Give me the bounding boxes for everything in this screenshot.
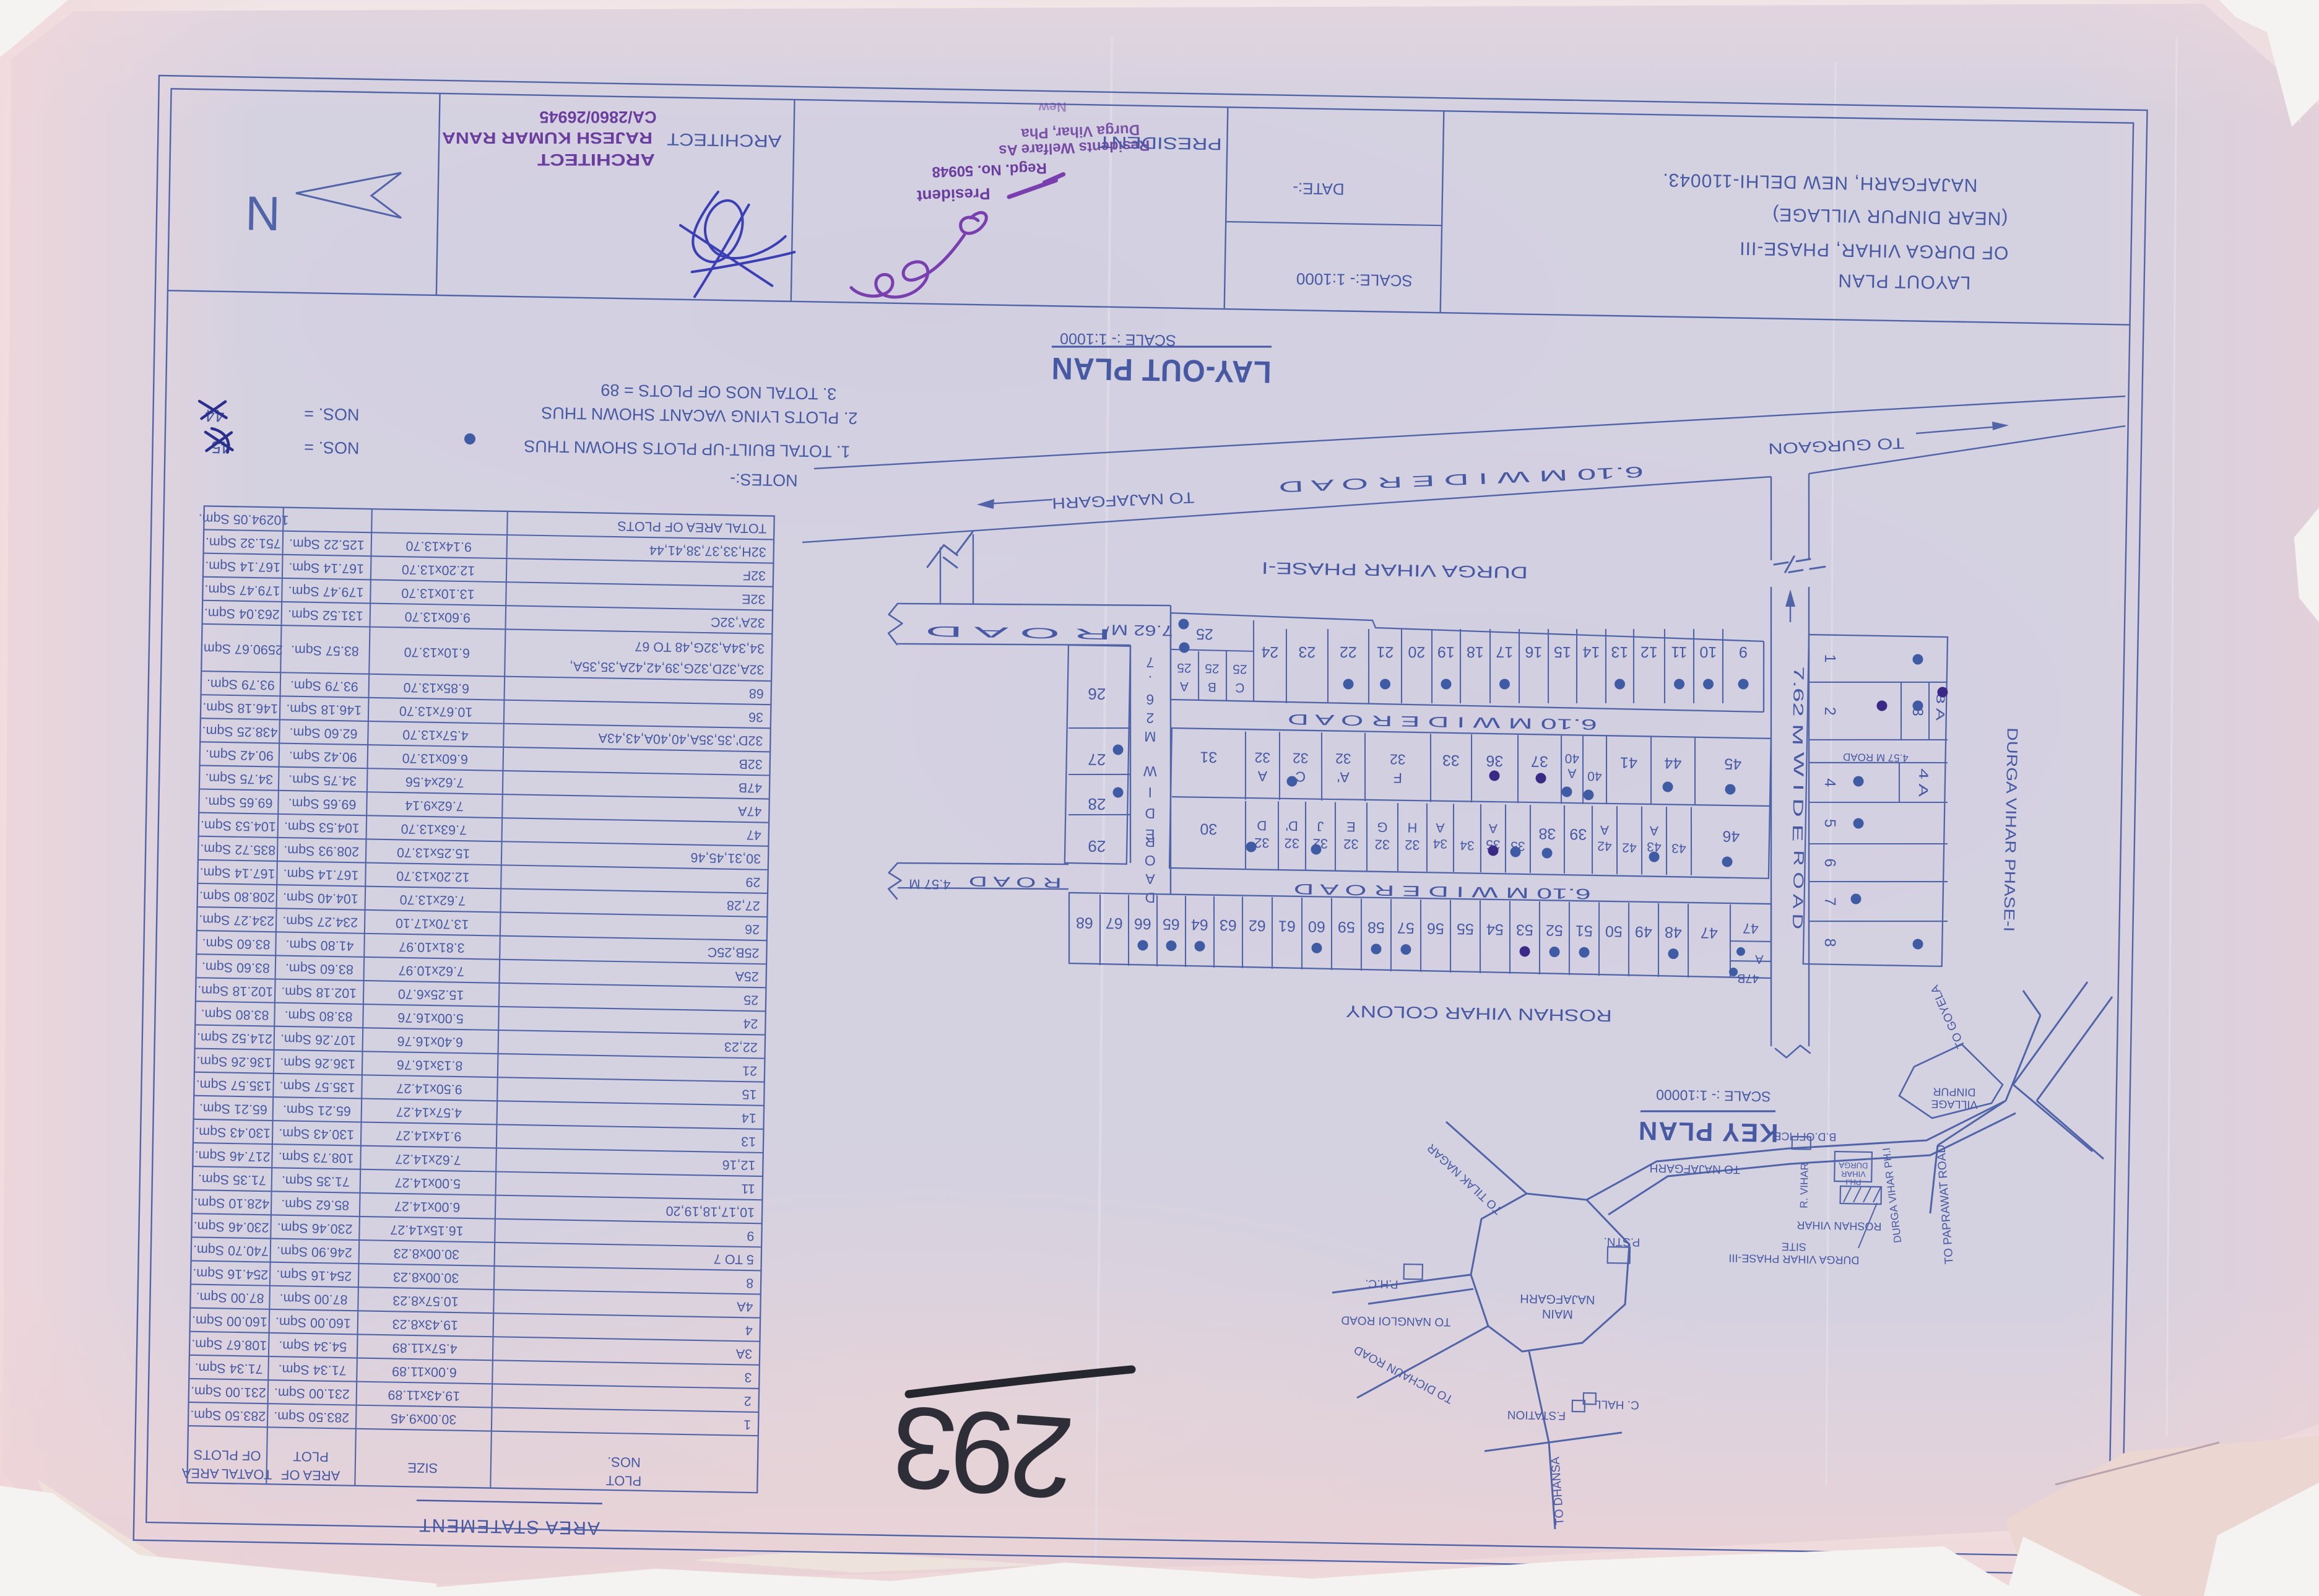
svg-text:146.18 Sqm.: 146.18 Sqm. (202, 700, 278, 716)
svg-text:34.75 Sqm.: 34.75 Sqm. (288, 772, 357, 788)
svg-text:25A: 25A (735, 969, 759, 984)
svg-text:69.65 Sqm.: 69.65 Sqm. (288, 796, 356, 812)
svg-text:55: 55 (1457, 920, 1474, 937)
svg-text:4.57 M ROAD: 4.57 M ROAD (1843, 751, 1909, 764)
svg-text:16: 16 (1525, 643, 1542, 661)
svg-text:58: 58 (1368, 919, 1385, 936)
svg-text:47B: 47B (1737, 971, 1759, 986)
svg-text:85.62 Sqm.: 85.62 Sqm. (281, 1197, 349, 1213)
svg-text:AREA STATEMENT: AREA STATEMENT (418, 1515, 600, 1538)
svg-text:47B: 47B (739, 780, 763, 796)
svg-text:M: M (1144, 729, 1156, 745)
svg-text:41.80 Sqm.: 41.80 Sqm. (285, 937, 353, 953)
svg-text:9.60x13.70: 9.60x13.70 (404, 609, 470, 625)
svg-text:NOS. =: NOS. = (304, 438, 360, 458)
svg-text:62.60 Sqm.: 62.60 Sqm. (289, 725, 357, 741)
svg-text:A: A (1567, 766, 1576, 780)
svg-text:9.14x14.27: 9.14x14.27 (396, 1128, 462, 1144)
svg-text:102.18 Sqm.: 102.18 Sqm. (281, 984, 357, 1000)
svg-text:136.26 Sqm.: 136.26 Sqm. (196, 1054, 272, 1070)
svg-text:254.16 Sqm.: 254.16 Sqm. (276, 1267, 352, 1283)
svg-text:30.00x8.23: 30.00x8.23 (393, 1270, 459, 1286)
svg-text:15: 15 (1554, 643, 1571, 661)
svg-text:6.40x16.76: 6.40x16.76 (397, 1034, 463, 1050)
svg-text:21: 21 (742, 1063, 757, 1078)
svg-text:32: 32 (1284, 836, 1299, 851)
svg-text:104.53 Sqm.: 104.53 Sqm. (284, 820, 360, 836)
svg-text:87.00 Sqm.: 87.00 Sqm. (279, 1291, 347, 1307)
svg-text:231.00 Sqm.: 231.00 Sqm. (191, 1384, 266, 1400)
svg-text:7.62x14.27: 7.62x14.27 (395, 1151, 461, 1168)
svg-text:11: 11 (1671, 643, 1687, 661)
svg-text:263.04 Sqm.: 263.04 Sqm. (204, 605, 280, 622)
svg-text:13.10x13.70: 13.10x13.70 (401, 586, 475, 602)
svg-text:J: J (1317, 818, 1324, 834)
svg-text:AREA OF: AREA OF (281, 1467, 340, 1484)
svg-text:254.16 Sqm.: 254.16 Sqm. (193, 1266, 268, 1282)
svg-text:7: 7 (1146, 654, 1154, 670)
svg-text:25: 25 (1233, 662, 1247, 676)
svg-text:29: 29 (1088, 837, 1106, 856)
svg-text:9: 9 (1739, 643, 1748, 661)
svg-text:A: A (1180, 679, 1189, 693)
svg-text:5 TO 7: 5 TO 7 (714, 1252, 754, 1267)
svg-text:13.70x17.10: 13.70x17.10 (396, 916, 469, 932)
svg-text:135.57 Sqm.: 135.57 Sqm. (279, 1079, 355, 1095)
svg-text:25: 25 (743, 992, 758, 1007)
svg-text:231.00 Sqm.: 231.00 Sqm. (274, 1386, 350, 1402)
svg-text:30,31,45,46: 30,31,45,46 (690, 850, 761, 866)
svg-text:751.32 Sqm.: 751.32 Sqm. (206, 535, 281, 551)
svg-text:33: 33 (1442, 752, 1460, 769)
svg-text:7.62 M: 7.62 M (1790, 666, 1807, 745)
svg-text:4.57x13.70: 4.57x13.70 (402, 727, 469, 744)
svg-text:34,34A,32G,48 TO 67: 34,34A,32G,48 TO 67 (635, 639, 765, 656)
svg-text:LAY-OUT PLAN: LAY-OUT PLAN (1051, 351, 1272, 389)
svg-text:104.40 Sqm.: 104.40 Sqm. (283, 890, 358, 906)
svg-text:32: 32 (1254, 750, 1270, 766)
svg-text:68: 68 (1076, 914, 1093, 931)
svg-text:A: A (1600, 823, 1609, 837)
svg-text:53: 53 (1516, 921, 1533, 939)
svg-text:32: 32 (1335, 750, 1351, 766)
svg-text:107.26 Sqm.: 107.26 Sqm. (280, 1031, 356, 1047)
svg-text:7.62x4.56: 7.62x4.56 (405, 774, 464, 791)
svg-text:New: New (1038, 99, 1067, 116)
svg-text:40: 40 (1587, 769, 1602, 783)
svg-text:37: 37 (1531, 752, 1548, 770)
svg-text:13: 13 (1611, 643, 1628, 661)
svg-text:428.10 Sqm.: 428.10 Sqm. (194, 1195, 269, 1212)
svg-text:42: 42 (1622, 840, 1637, 854)
svg-text:24: 24 (1261, 643, 1278, 661)
svg-text:24: 24 (743, 1016, 758, 1031)
svg-text:10294.05 Sqm.: 10294.05 Sqm. (198, 511, 288, 528)
svg-text:19.43x8.23: 19.43x8.23 (392, 1317, 458, 1333)
svg-text:(NEAR DINPUR VILLAGE): (NEAR DINPUR VILLAGE) (1772, 204, 2008, 229)
svg-text:34: 34 (1460, 838, 1475, 852)
svg-text:25B,25C: 25B,25C (708, 945, 760, 960)
svg-text:8: 8 (1821, 938, 1839, 947)
svg-text:PLOT: PLOT (293, 1449, 329, 1465)
svg-text:4.57x14.27: 4.57x14.27 (396, 1104, 462, 1121)
svg-text:71.34 Sqm.: 71.34 Sqm. (278, 1362, 346, 1378)
svg-text:B: B (1208, 680, 1216, 694)
svg-text:3A: 3A (735, 1347, 752, 1361)
svg-text:234.27 Sqm.: 234.27 Sqm. (199, 913, 274, 929)
svg-text:38: 38 (1538, 825, 1556, 842)
svg-text:28: 28 (1088, 795, 1106, 814)
svg-text:TO NANGLOI ROAD: TO NANGLOI ROAD (1341, 1313, 1450, 1328)
svg-text:7: 7 (1821, 897, 1839, 906)
svg-text:PRESIDENT: PRESIDENT (1098, 132, 1222, 153)
svg-text:93.79 Sqm.: 93.79 Sqm. (207, 677, 275, 693)
svg-text:12: 12 (1641, 643, 1658, 661)
svg-text:12.20x13.70: 12.20x13.70 (402, 562, 475, 578)
svg-text:4.57 M: 4.57 M (909, 876, 951, 892)
svg-text:32: 32 (1390, 752, 1406, 768)
svg-text:87.00 Sqm.: 87.00 Sqm. (196, 1290, 264, 1306)
svg-text:PLOT: PLOT (606, 1473, 642, 1489)
svg-text:34.75 Sqm.: 34.75 Sqm. (205, 771, 273, 787)
svg-text:32: 32 (1405, 837, 1420, 852)
svg-text:54: 54 (1486, 921, 1504, 938)
svg-text:17: 17 (1496, 643, 1513, 661)
svg-text:30: 30 (1200, 820, 1217, 838)
svg-text:83.80 Sqm.: 83.80 Sqm. (284, 1008, 352, 1024)
svg-text:NAJAFGARH: NAJAFGARH (1520, 1291, 1595, 1306)
svg-text:TOATAL AREA: TOATAL AREA (181, 1465, 272, 1483)
svg-text:7.62x9.14: 7.62x9.14 (405, 798, 464, 814)
svg-text:50: 50 (1605, 922, 1623, 940)
svg-text:47A: 47A (737, 804, 761, 819)
svg-text:160.00 Sqm.: 160.00 Sqm. (192, 1313, 267, 1329)
svg-text:90.42 Sqm.: 90.42 Sqm. (206, 747, 274, 763)
svg-text:A: A (1436, 820, 1444, 835)
svg-text:R O A D: R O A D (969, 874, 1062, 891)
svg-text:25: 25 (1205, 661, 1220, 675)
svg-text:F.STATION: F.STATION (1507, 1408, 1566, 1422)
svg-text:293: 293 (892, 1382, 1078, 1524)
svg-text:214.52 Sqm.: 214.52 Sqm. (197, 1030, 272, 1046)
svg-text:32: 32 (1343, 836, 1359, 852)
svg-text:6.85x13.70: 6.85x13.70 (403, 680, 469, 696)
svg-text:32A',32C: 32A',32C (711, 615, 765, 631)
svg-text:1: 1 (743, 1417, 751, 1432)
svg-text:54.34 Sqm.: 54.34 Sqm. (279, 1338, 347, 1355)
svg-text:D: D (1145, 805, 1155, 822)
svg-text:12.20x13.70: 12.20x13.70 (396, 869, 470, 885)
svg-text:167.14 Sqm.: 167.14 Sqm. (288, 560, 364, 576)
svg-text:39: 39 (1569, 825, 1587, 843)
svg-text:3 A: 3 A (1933, 693, 1947, 721)
svg-text:167.14 Sqm.: 167.14 Sqm. (205, 558, 280, 575)
svg-text:TOTAL AREA OF PLOTS: TOTAL AREA OF PLOTS (617, 519, 766, 536)
svg-text:SCALE :- 1:10000: SCALE :- 1:10000 (1656, 1086, 1771, 1104)
svg-text:5.00x16.76: 5.00x16.76 (397, 1010, 464, 1026)
svg-text:I: I (1148, 784, 1152, 800)
svg-text:5: 5 (1821, 818, 1839, 827)
svg-text:71.35 Sqm.: 71.35 Sqm. (198, 1172, 266, 1188)
svg-text:C. HALL: C. HALL (1595, 1397, 1639, 1411)
svg-text:130.43 Sqm.: 130.43 Sqm. (195, 1124, 271, 1140)
svg-text:283.50 Sqm.: 283.50 Sqm. (274, 1409, 349, 1425)
svg-text:9: 9 (747, 1228, 754, 1243)
svg-text:83.60 Sqm.: 83.60 Sqm. (202, 960, 270, 976)
svg-text:167.14 Sqm.: 167.14 Sqm. (283, 867, 358, 883)
svg-text:59: 59 (1338, 918, 1355, 935)
svg-text:438.25 Sqm.: 438.25 Sqm. (202, 724, 277, 740)
svg-text:27: 27 (1088, 750, 1106, 770)
svg-text:136.26 Sqm.: 136.26 Sqm. (280, 1055, 355, 1071)
svg-text:C: C (1235, 680, 1245, 695)
svg-text:14: 14 (1582, 643, 1600, 661)
svg-text:63: 63 (1220, 916, 1237, 934)
svg-text:KEY PLAN: KEY PLAN (1637, 1116, 1779, 1148)
svg-text:9.50x14.27: 9.50x14.27 (396, 1081, 462, 1097)
svg-text:2: 2 (1146, 710, 1154, 726)
svg-text:102.18 Sqm.: 102.18 Sqm. (197, 983, 273, 999)
svg-text:67: 67 (1106, 914, 1123, 932)
svg-text:29: 29 (745, 875, 760, 890)
svg-text:10.67x13.70: 10.67x13.70 (399, 703, 473, 719)
svg-text:43: 43 (1671, 841, 1686, 855)
svg-text:NOS.: NOS. (607, 1454, 641, 1470)
svg-text:W I D E: W I D E (1790, 752, 1808, 841)
svg-text:A: A (1489, 821, 1498, 835)
svg-text:A: A (1257, 768, 1267, 784)
svg-text:36: 36 (748, 709, 763, 724)
svg-text:CA/2860/26945: CA/2860/26945 (539, 108, 656, 126)
svg-text:11: 11 (741, 1181, 755, 1196)
svg-text:60: 60 (1308, 917, 1325, 935)
svg-text:283.50 Sqm.: 283.50 Sqm. (190, 1408, 266, 1424)
svg-text:20: 20 (1408, 643, 1425, 661)
svg-text:32E: 32E (742, 591, 766, 607)
svg-text:230.46 Sqm.: 230.46 Sqm. (277, 1220, 352, 1236)
svg-text:6: 6 (1146, 692, 1154, 708)
svg-text:15.25x6.70: 15.25x6.70 (398, 986, 464, 1002)
svg-text:ARCHITECT: ARCHITECT (537, 150, 655, 169)
svg-text:26: 26 (1088, 685, 1106, 704)
svg-text:SIZE: SIZE (407, 1460, 438, 1476)
svg-text:SITE: SITE (1782, 1241, 1806, 1254)
svg-text:A: A (1754, 952, 1763, 966)
svg-text:8: 8 (746, 1276, 753, 1291)
svg-text:DINPUR: DINPUR (1933, 1085, 1975, 1098)
svg-text:4: 4 (745, 1323, 753, 1338)
svg-text:146.18 Sqm.: 146.18 Sqm. (286, 701, 362, 718)
svg-text:19.43x11.89: 19.43x11.89 (388, 1387, 460, 1403)
svg-text:A: A (1145, 871, 1155, 887)
svg-text:179.47 Sqm.: 179.47 Sqm. (204, 582, 280, 598)
svg-text:7.63x13.70: 7.63x13.70 (401, 822, 467, 838)
svg-text:835.72 Sqm.: 835.72 Sqm. (200, 841, 275, 857)
svg-text:104.53 Sqm.: 104.53 Sqm. (201, 818, 276, 834)
svg-text:9.14x13.70: 9.14x13.70 (405, 539, 472, 555)
svg-text:65: 65 (1163, 915, 1180, 932)
svg-text:DATE:-: DATE:- (1293, 179, 1345, 198)
svg-text:56: 56 (1427, 919, 1444, 937)
svg-text:.: . (1148, 673, 1152, 689)
svg-text:16.15x14.27: 16.15x14.27 (390, 1222, 464, 1238)
svg-text:6.00x14.27: 6.00x14.27 (394, 1199, 461, 1215)
svg-text:30.00x9.45: 30.00x9.45 (391, 1411, 457, 1427)
svg-text:25: 25 (1177, 661, 1192, 675)
svg-text:LAYOUT PLAN: LAYOUT PLAN (1837, 270, 1971, 293)
svg-text:135.57 Sqm.: 135.57 Sqm. (196, 1077, 271, 1093)
svg-text:230.46 Sqm.: 230.46 Sqm. (193, 1219, 269, 1235)
svg-text:D: D (1145, 890, 1155, 906)
svg-text:4 A: 4 A (1916, 768, 1931, 797)
svg-text:6: 6 (1821, 858, 1839, 867)
svg-text:36: 36 (1486, 752, 1503, 770)
svg-text:32H,33,37,38,41,44: 32H,33,37,38,41,44 (649, 543, 766, 560)
svg-text:N: N (245, 186, 281, 241)
svg-text:108.73 Sqm.: 108.73 Sqm. (278, 1150, 353, 1166)
svg-text:130.43 Sqm.: 130.43 Sqm. (279, 1126, 354, 1142)
svg-text:40: 40 (1565, 751, 1580, 765)
svg-text:160.00 Sqm.: 160.00 Sqm. (275, 1314, 351, 1330)
svg-text:51: 51 (1576, 922, 1593, 939)
svg-text:15: 15 (742, 1087, 756, 1102)
svg-text:6.10x13.70: 6.10x13.70 (404, 644, 470, 661)
svg-text:E: E (1346, 819, 1356, 835)
svg-text:32D',35,35A,40,40A,43,43A: 32D',35,35A,40,40A,43,43A (598, 731, 763, 748)
svg-text:167.14 Sqm.: 167.14 Sqm. (199, 865, 275, 881)
svg-text:TO NAJAFGARH: TO NAJAFGARH (1649, 1161, 1740, 1176)
svg-text:NOTES:-: NOTES:- (730, 470, 798, 490)
svg-text:R O A D: R O A D (925, 622, 1111, 642)
svg-text:48: 48 (1665, 923, 1682, 940)
svg-text:O: O (1145, 852, 1156, 869)
svg-text:15.25x13.70: 15.25x13.70 (397, 845, 470, 861)
svg-text:F: F (1394, 770, 1403, 786)
svg-text:8.13x16.76: 8.13x16.76 (397, 1057, 463, 1073)
svg-text:46: 46 (1722, 827, 1740, 844)
svg-text:208.80 Sqm.: 208.80 Sqm. (199, 888, 275, 904)
svg-text:2: 2 (1821, 706, 1839, 715)
svg-text:71.35 Sqm.: 71.35 Sqm. (282, 1173, 350, 1189)
svg-text:246.90 Sqm.: 246.90 Sqm. (277, 1244, 352, 1260)
svg-text:217.46 Sqm.: 217.46 Sqm. (194, 1148, 270, 1164)
svg-text:32F: 32F (743, 568, 766, 583)
svg-text:DURGA VIHAR PHASE-I: DURGA VIHAR PHASE-I (2000, 727, 2021, 932)
svg-text:179.47 Sqm.: 179.47 Sqm. (288, 584, 363, 600)
svg-text:32: 32 (1254, 835, 1270, 851)
svg-text:W: W (1143, 763, 1156, 779)
svg-text:34: 34 (1433, 836, 1447, 851)
svg-text:125.22 Sqm.: 125.22 Sqm. (289, 536, 365, 552)
svg-text:62: 62 (1249, 917, 1266, 934)
svg-text:G: G (1377, 820, 1388, 835)
svg-text:18: 18 (1467, 643, 1484, 661)
svg-text:47: 47 (1701, 924, 1718, 941)
svg-text:NOS. =: NOS. = (304, 404, 360, 424)
svg-text:740.70 Sqm.: 740.70 Sqm. (193, 1243, 269, 1259)
svg-text:83.60 Sqm.: 83.60 Sqm. (202, 936, 270, 952)
svg-text:32: 32 (1293, 750, 1309, 766)
svg-text:69.65 Sqm.: 69.65 Sqm. (204, 794, 272, 810)
svg-text:66: 66 (1134, 915, 1151, 932)
svg-text:83.57 Sqm.: 83.57 Sqm. (291, 643, 359, 659)
svg-text:R: R (1145, 834, 1155, 850)
svg-text:DURGA: DURGA (1839, 1161, 1868, 1171)
svg-text:VILLAGE: VILLAGE (1931, 1098, 1977, 1111)
svg-text:90.42 Sqm.: 90.42 Sqm. (289, 748, 357, 765)
svg-text:83.80 Sqm.: 83.80 Sqm. (201, 1007, 269, 1023)
svg-text:42: 42 (1597, 839, 1612, 853)
svg-text:30.00x8.23: 30.00x8.23 (393, 1246, 459, 1262)
svg-text:26: 26 (745, 922, 760, 937)
svg-text:SCALE:- 1:1000: SCALE:- 1:1000 (1296, 269, 1413, 290)
svg-text:31: 31 (1200, 748, 1217, 766)
svg-text:A': A' (1337, 769, 1350, 785)
svg-text:3.81x10.97: 3.81x10.97 (399, 939, 465, 955)
svg-text:DURGA VIHAR PHASE-III: DURGA VIHAR PHASE-III (1728, 1252, 1859, 1267)
svg-text:D: D (1257, 818, 1267, 833)
svg-text:65.21 Sqm.: 65.21 Sqm. (199, 1101, 267, 1117)
svg-text:71.34 Sqm.: 71.34 Sqm. (194, 1360, 262, 1376)
svg-text:131.52 Sqm.: 131.52 Sqm. (288, 607, 363, 623)
svg-text:108.67 Sqm.: 108.67 Sqm. (191, 1337, 267, 1353)
svg-text:4.57x11.89: 4.57x11.89 (392, 1340, 457, 1356)
svg-text:4A: 4A (736, 1299, 753, 1314)
svg-text:2590.67 Sqm.: 2590.67 Sqm. (200, 641, 283, 657)
svg-text:45: 45 (1724, 755, 1741, 772)
svg-text:PH.I: PH.I (1845, 1177, 1862, 1187)
svg-text:6.00x11.89: 6.00x11.89 (392, 1364, 457, 1380)
svg-text:VIHAR: VIHAR (1841, 1169, 1866, 1179)
svg-text:ARCHITECT: ARCHITECT (667, 129, 782, 150)
svg-text:68: 68 (749, 686, 764, 701)
svg-text:44: 44 (1664, 754, 1681, 771)
svg-text:22: 22 (1340, 643, 1357, 661)
svg-text:7.62x13.70: 7.62x13.70 (399, 892, 466, 908)
svg-text:10.57x8.23: 10.57x8.23 (392, 1293, 459, 1309)
svg-text:25: 25 (1196, 625, 1213, 643)
svg-text:65.21 Sqm.: 65.21 Sqm. (283, 1103, 351, 1119)
svg-text:A: A (1650, 823, 1658, 838)
svg-text:7.62 M: 7.62 M (1111, 621, 1173, 639)
svg-text:President: President (916, 184, 990, 206)
svg-text:P.H.C.: P.H.C. (1365, 1277, 1398, 1290)
svg-text:22,23: 22,23 (724, 1039, 758, 1055)
svg-text:41: 41 (1620, 753, 1637, 771)
svg-text:10: 10 (1699, 643, 1717, 661)
svg-text:D': D' (1286, 818, 1299, 834)
svg-text:47: 47 (1743, 921, 1759, 937)
svg-text:83.60 Sqm.: 83.60 Sqm. (285, 961, 353, 977)
svg-text:23: 23 (1298, 643, 1316, 661)
svg-text:21: 21 (1376, 643, 1394, 661)
svg-text:61: 61 (1278, 917, 1296, 934)
svg-text:4: 4 (1821, 778, 1839, 787)
svg-text:6.60x13.70: 6.60x13.70 (402, 751, 468, 767)
svg-text:H: H (1407, 820, 1417, 835)
svg-text:32B: 32B (739, 757, 763, 772)
svg-text:32: 32 (1374, 837, 1390, 852)
svg-text:13: 13 (741, 1134, 756, 1149)
svg-text:12,16: 12,16 (722, 1157, 755, 1173)
svg-text:27,28: 27,28 (727, 898, 760, 913)
svg-text:R. VIHAR: R. VIHAR (1798, 1163, 1810, 1208)
svg-text:MAIN: MAIN (1542, 1307, 1573, 1321)
svg-text:49: 49 (1635, 923, 1652, 940)
svg-text:93.79 Sqm.: 93.79 Sqm. (290, 678, 358, 694)
svg-text:1: 1 (1821, 654, 1839, 662)
svg-text:SCALE :- 1:1000: SCALE :- 1:1000 (1060, 329, 1176, 349)
